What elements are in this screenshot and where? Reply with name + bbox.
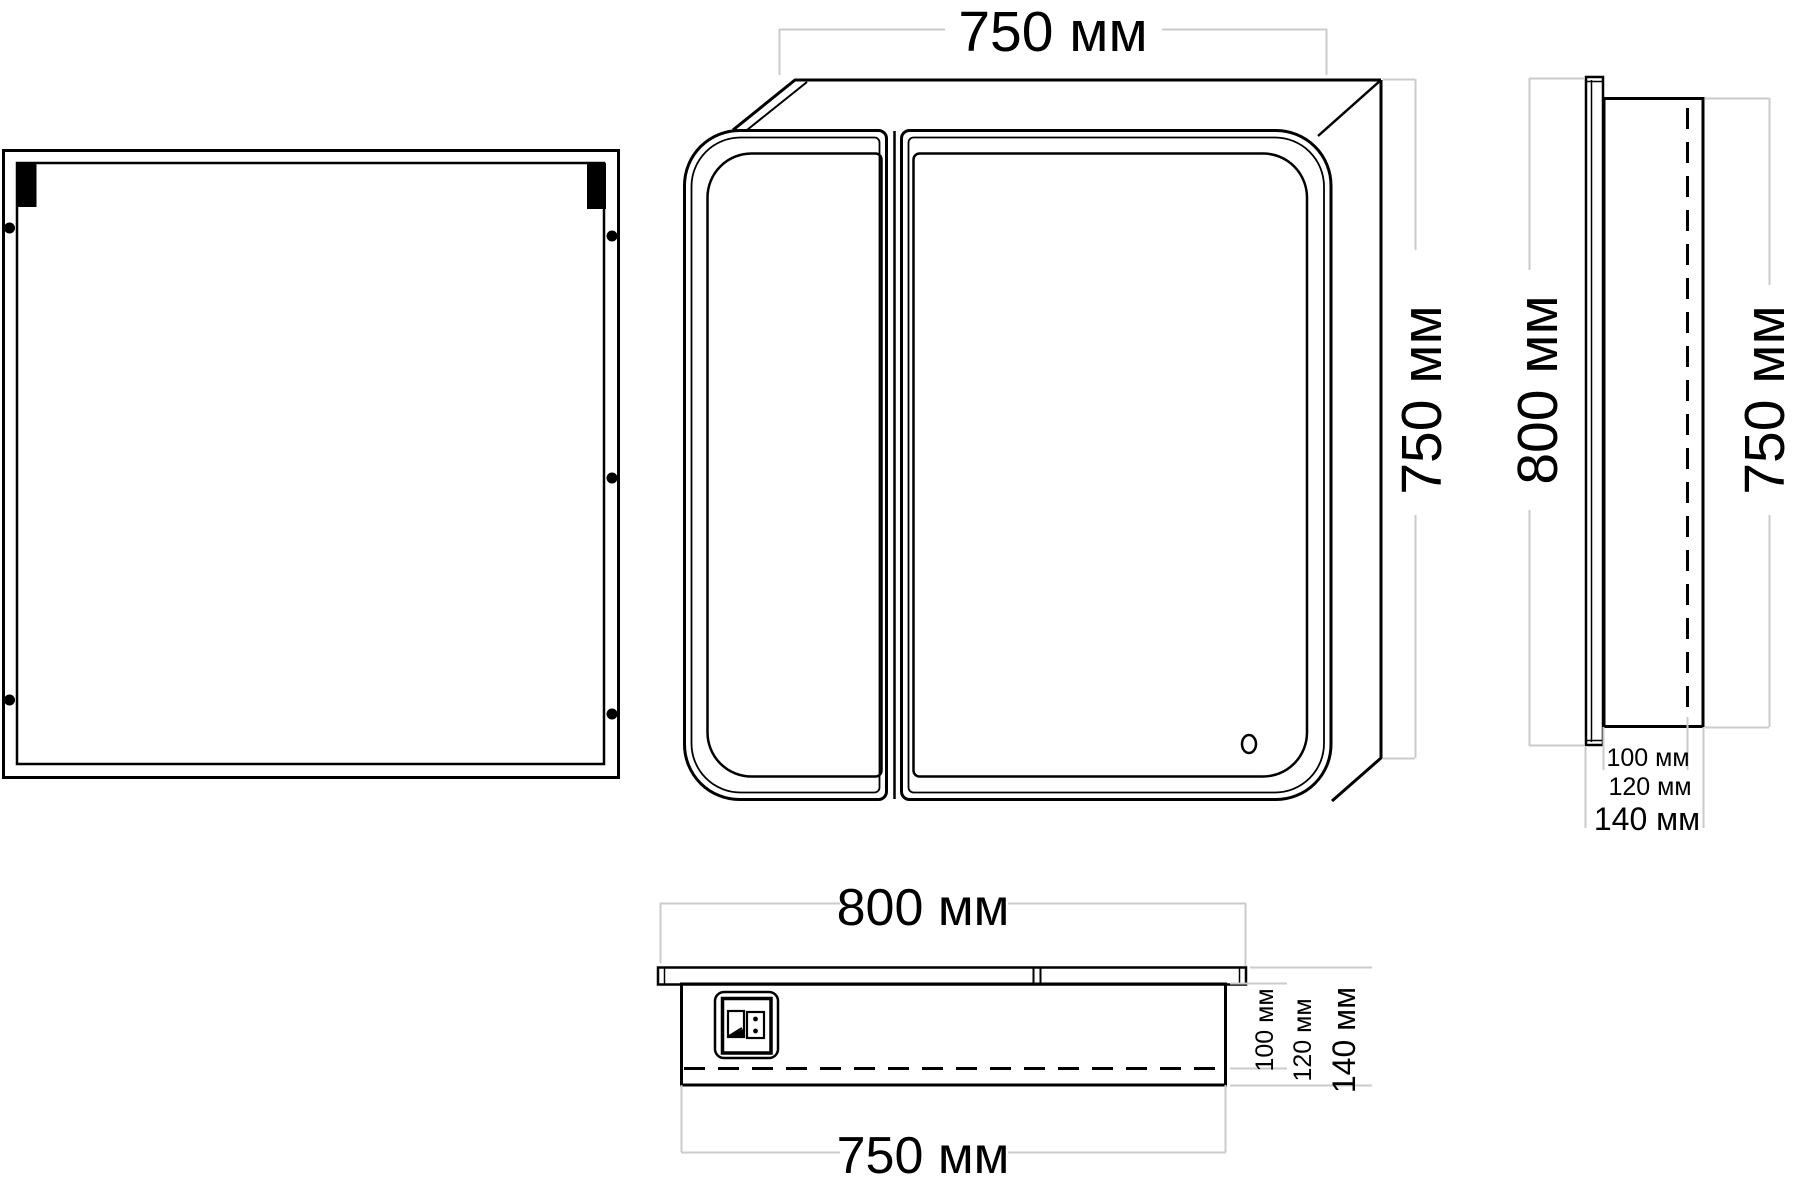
side-body-height-label: 750 мм (1733, 305, 1797, 494)
right-door-inner-frame (914, 154, 1308, 777)
hinge-hole-dot (4, 695, 15, 706)
left-door-edge (692, 138, 880, 793)
bottom-depth-label-140: 140 мм (1326, 987, 1362, 1093)
side-view: 800 мм 750 мм 100 мм 120 мм 140 мм (1506, 77, 1797, 837)
shelf-hole-dot (607, 231, 618, 242)
side-depth-dimensions: 100 мм 120 мм 140 мм (1586, 717, 1704, 837)
left-door (685, 131, 887, 800)
mounting-bracket-right-icon (587, 163, 606, 209)
bottom-door-gap-marks (1034, 967, 1041, 985)
side-depth-label-100: 100 мм (1606, 744, 1689, 772)
cabinet-top-face-inner-edge (747, 82, 807, 130)
cabinet-top-face (733, 80, 1381, 130)
side-depth-label-140: 140 мм (1594, 801, 1700, 837)
cabinet-side-face (1332, 80, 1381, 801)
left-door-inner-frame (708, 154, 882, 777)
shelf-hole-dot (607, 473, 618, 484)
socket-pin-dot (753, 1017, 758, 1022)
right-door (902, 131, 1332, 800)
bottom-overall-width-label: 800 мм (837, 879, 1010, 937)
technical-drawing-canvas: 750 мм 750 мм 800 мм 750 мм (0, 0, 1800, 1183)
front-width-dimension: 750 мм (779, 0, 1327, 75)
bottom-overall-width-dimension: 800 мм (660, 879, 1246, 966)
side-door-height-label: 800 мм (1506, 295, 1570, 484)
bottom-body-width-dimension: 750 мм (681, 1085, 1226, 1183)
side-door-height-dimension: 800 мм (1506, 78, 1584, 746)
touch-sensor-icon (1242, 735, 1256, 753)
shelf-hole-dot (607, 709, 618, 720)
right-door-edge (909, 138, 1325, 793)
bottom-depth-label-100: 100 мм (1251, 988, 1279, 1071)
socket-pin-dot (753, 1029, 758, 1034)
side-depth-label-120: 120 мм (1608, 773, 1691, 801)
cabinet-top-right-seam (1318, 80, 1381, 136)
hinge-hole-dot (4, 223, 15, 234)
bottom-door-strip (658, 968, 1246, 985)
back-view-outer-frame (4, 151, 619, 778)
bottom-view: 800 мм 750 мм 100 мм 120 мм 140 мм (658, 879, 1372, 1183)
bottom-door-strip-caps (665, 967, 1240, 985)
front-view: 750 мм 750 мм (685, 0, 1454, 801)
power-socket-icon (715, 992, 778, 1058)
side-door-panel (1586, 77, 1603, 745)
bottom-depth-dimensions: 100 мм 120 мм 140 мм (1230, 968, 1372, 1094)
side-door-panel-caps (1586, 82, 1603, 741)
bottom-depth-label-120: 120 мм (1289, 998, 1317, 1081)
technical-drawing-page: 750 мм 750 мм 800 мм 750 мм (0, 0, 1800, 1183)
mounting-bracket-left-icon (18, 163, 37, 207)
side-body-height-dimension: 750 мм (1705, 98, 1797, 728)
bottom-body-width-label: 750 мм (837, 1127, 1010, 1183)
front-height-dimension: 750 мм (1383, 79, 1454, 759)
front-width-label: 750 мм (958, 0, 1147, 64)
socket-plate (747, 1012, 764, 1038)
front-height-label: 750 мм (1390, 305, 1454, 494)
back-view-inner-frame (17, 163, 604, 764)
back-view (4, 151, 619, 778)
